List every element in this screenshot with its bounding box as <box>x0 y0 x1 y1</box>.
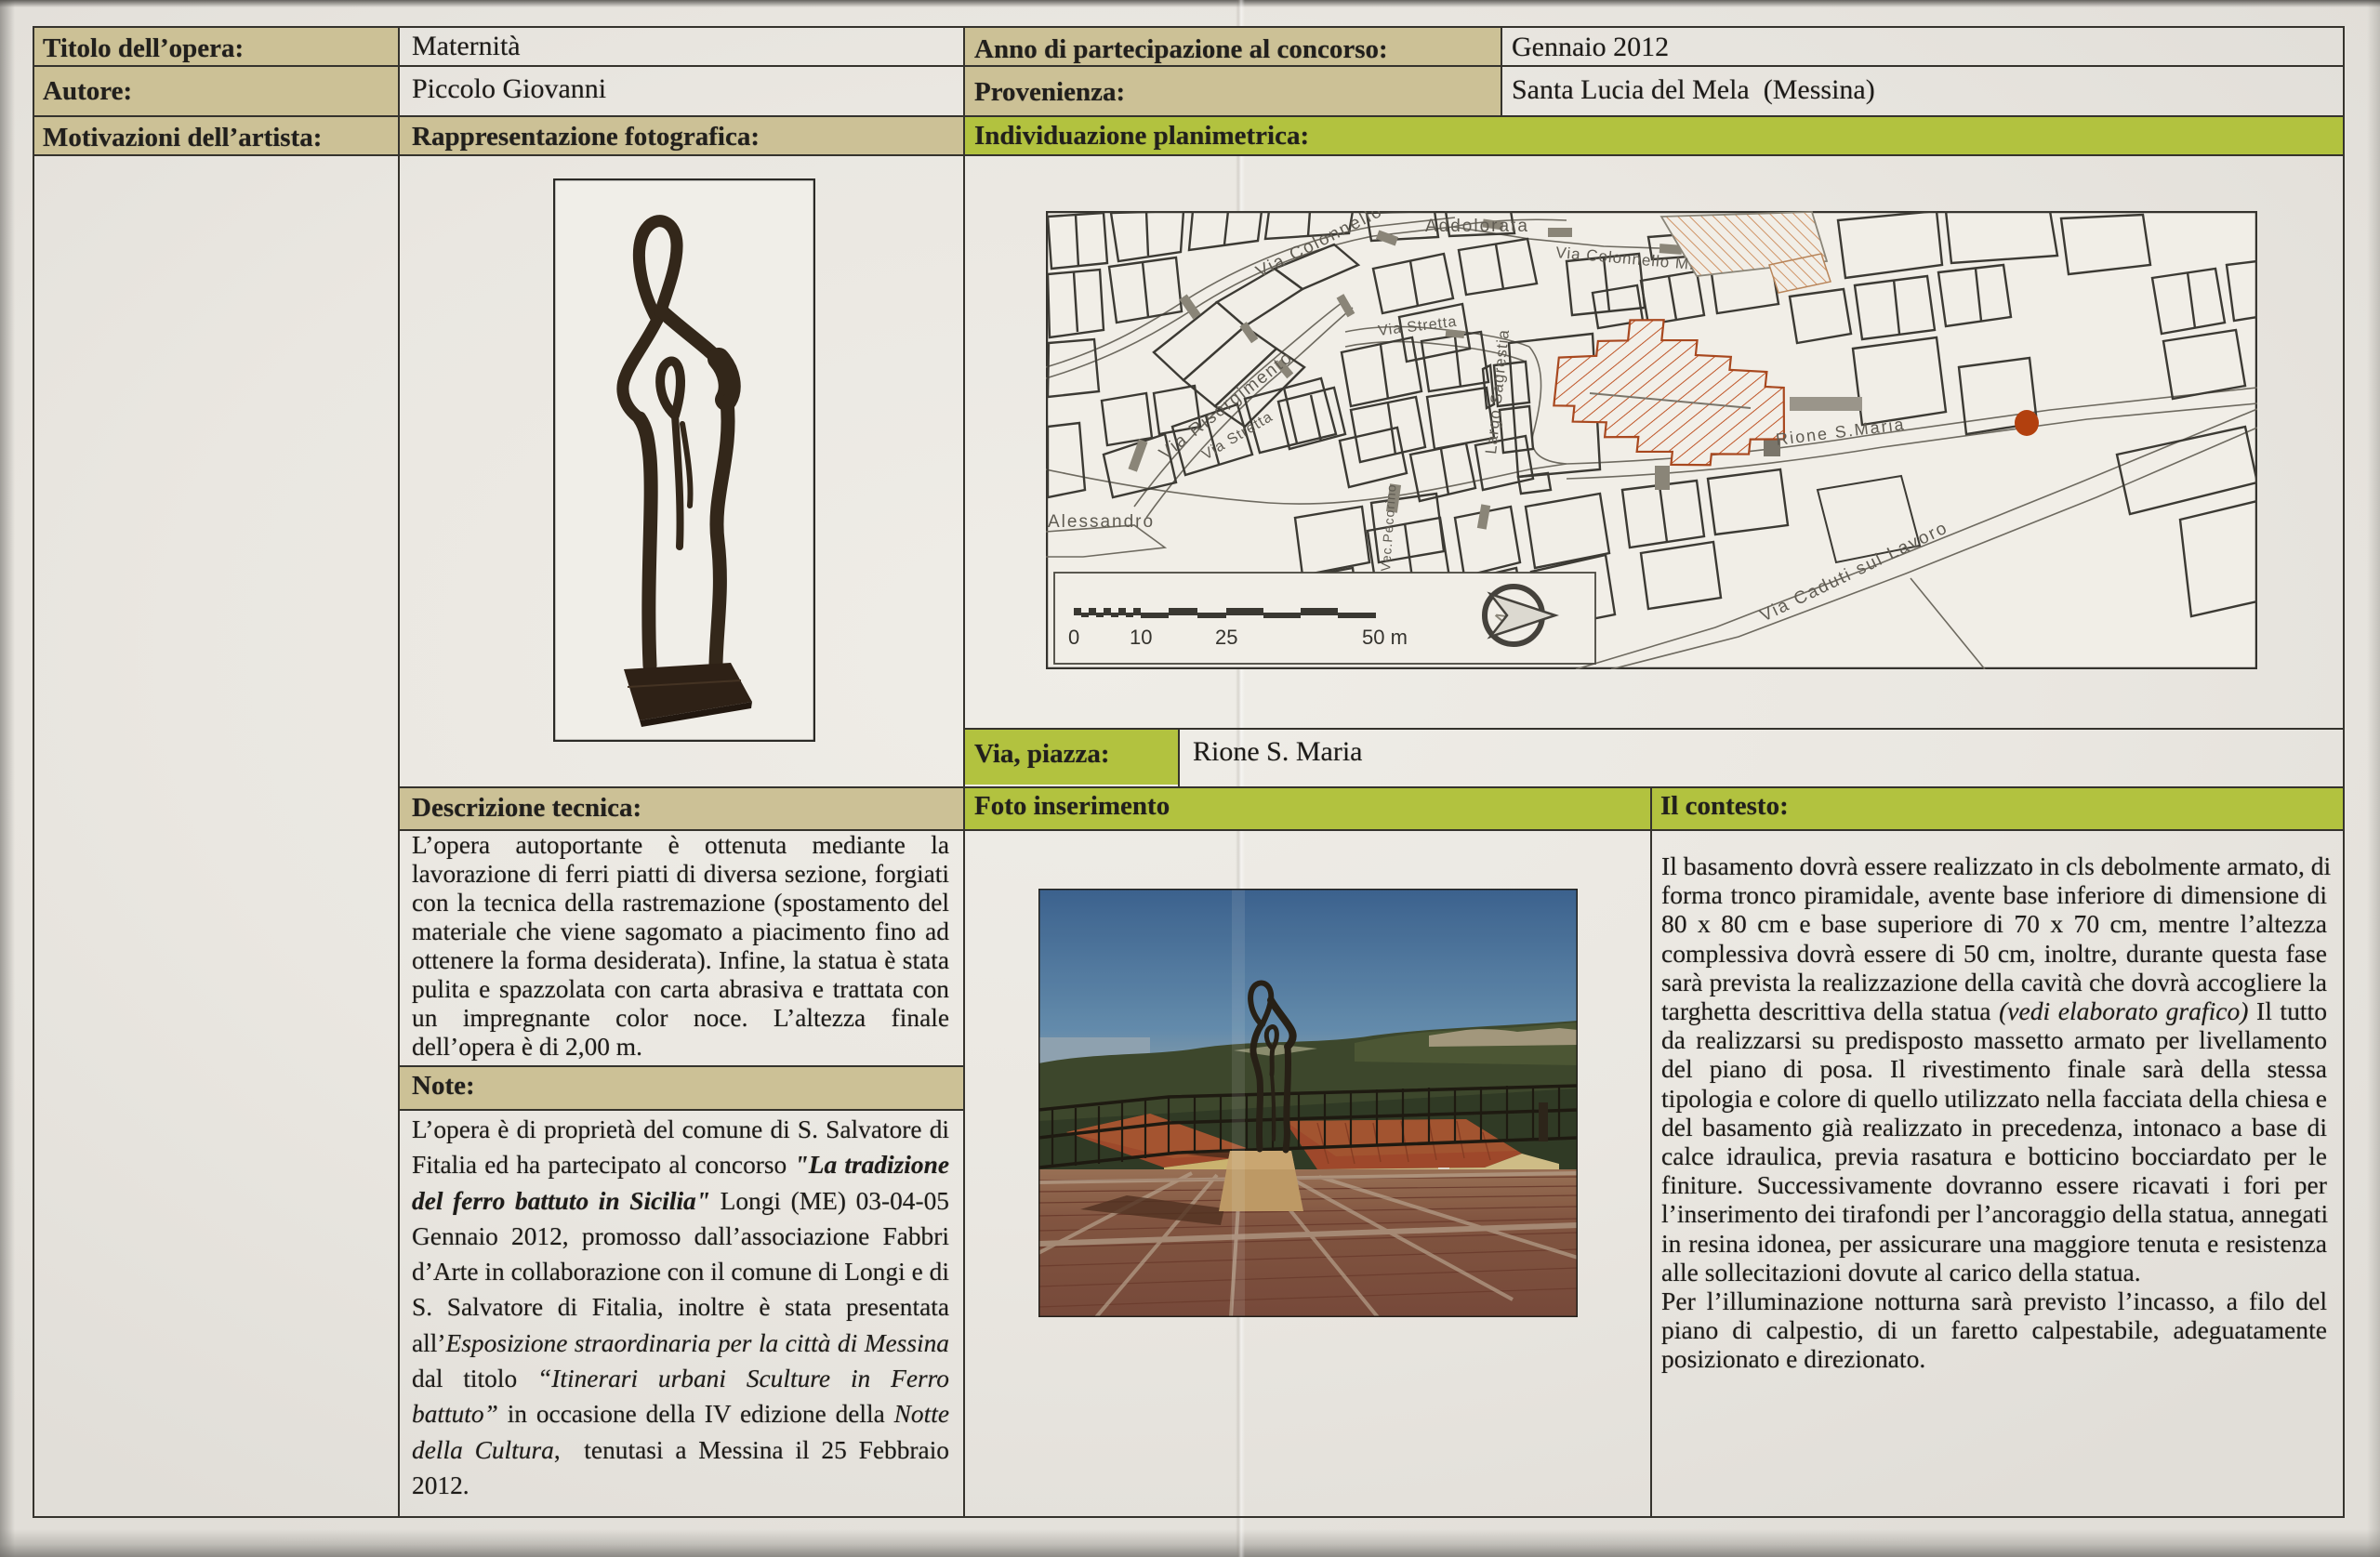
svg-text:25: 25 <box>1215 626 1237 649</box>
svg-text:Addolorata: Addolorata <box>1425 217 1529 236</box>
svg-text:10: 10 <box>1130 626 1152 649</box>
svg-text:0: 0 <box>1068 626 1079 649</box>
svg-text:50 m: 50 m <box>1362 626 1408 649</box>
svg-text:Alessandro: Alessandro <box>1048 512 1155 532</box>
